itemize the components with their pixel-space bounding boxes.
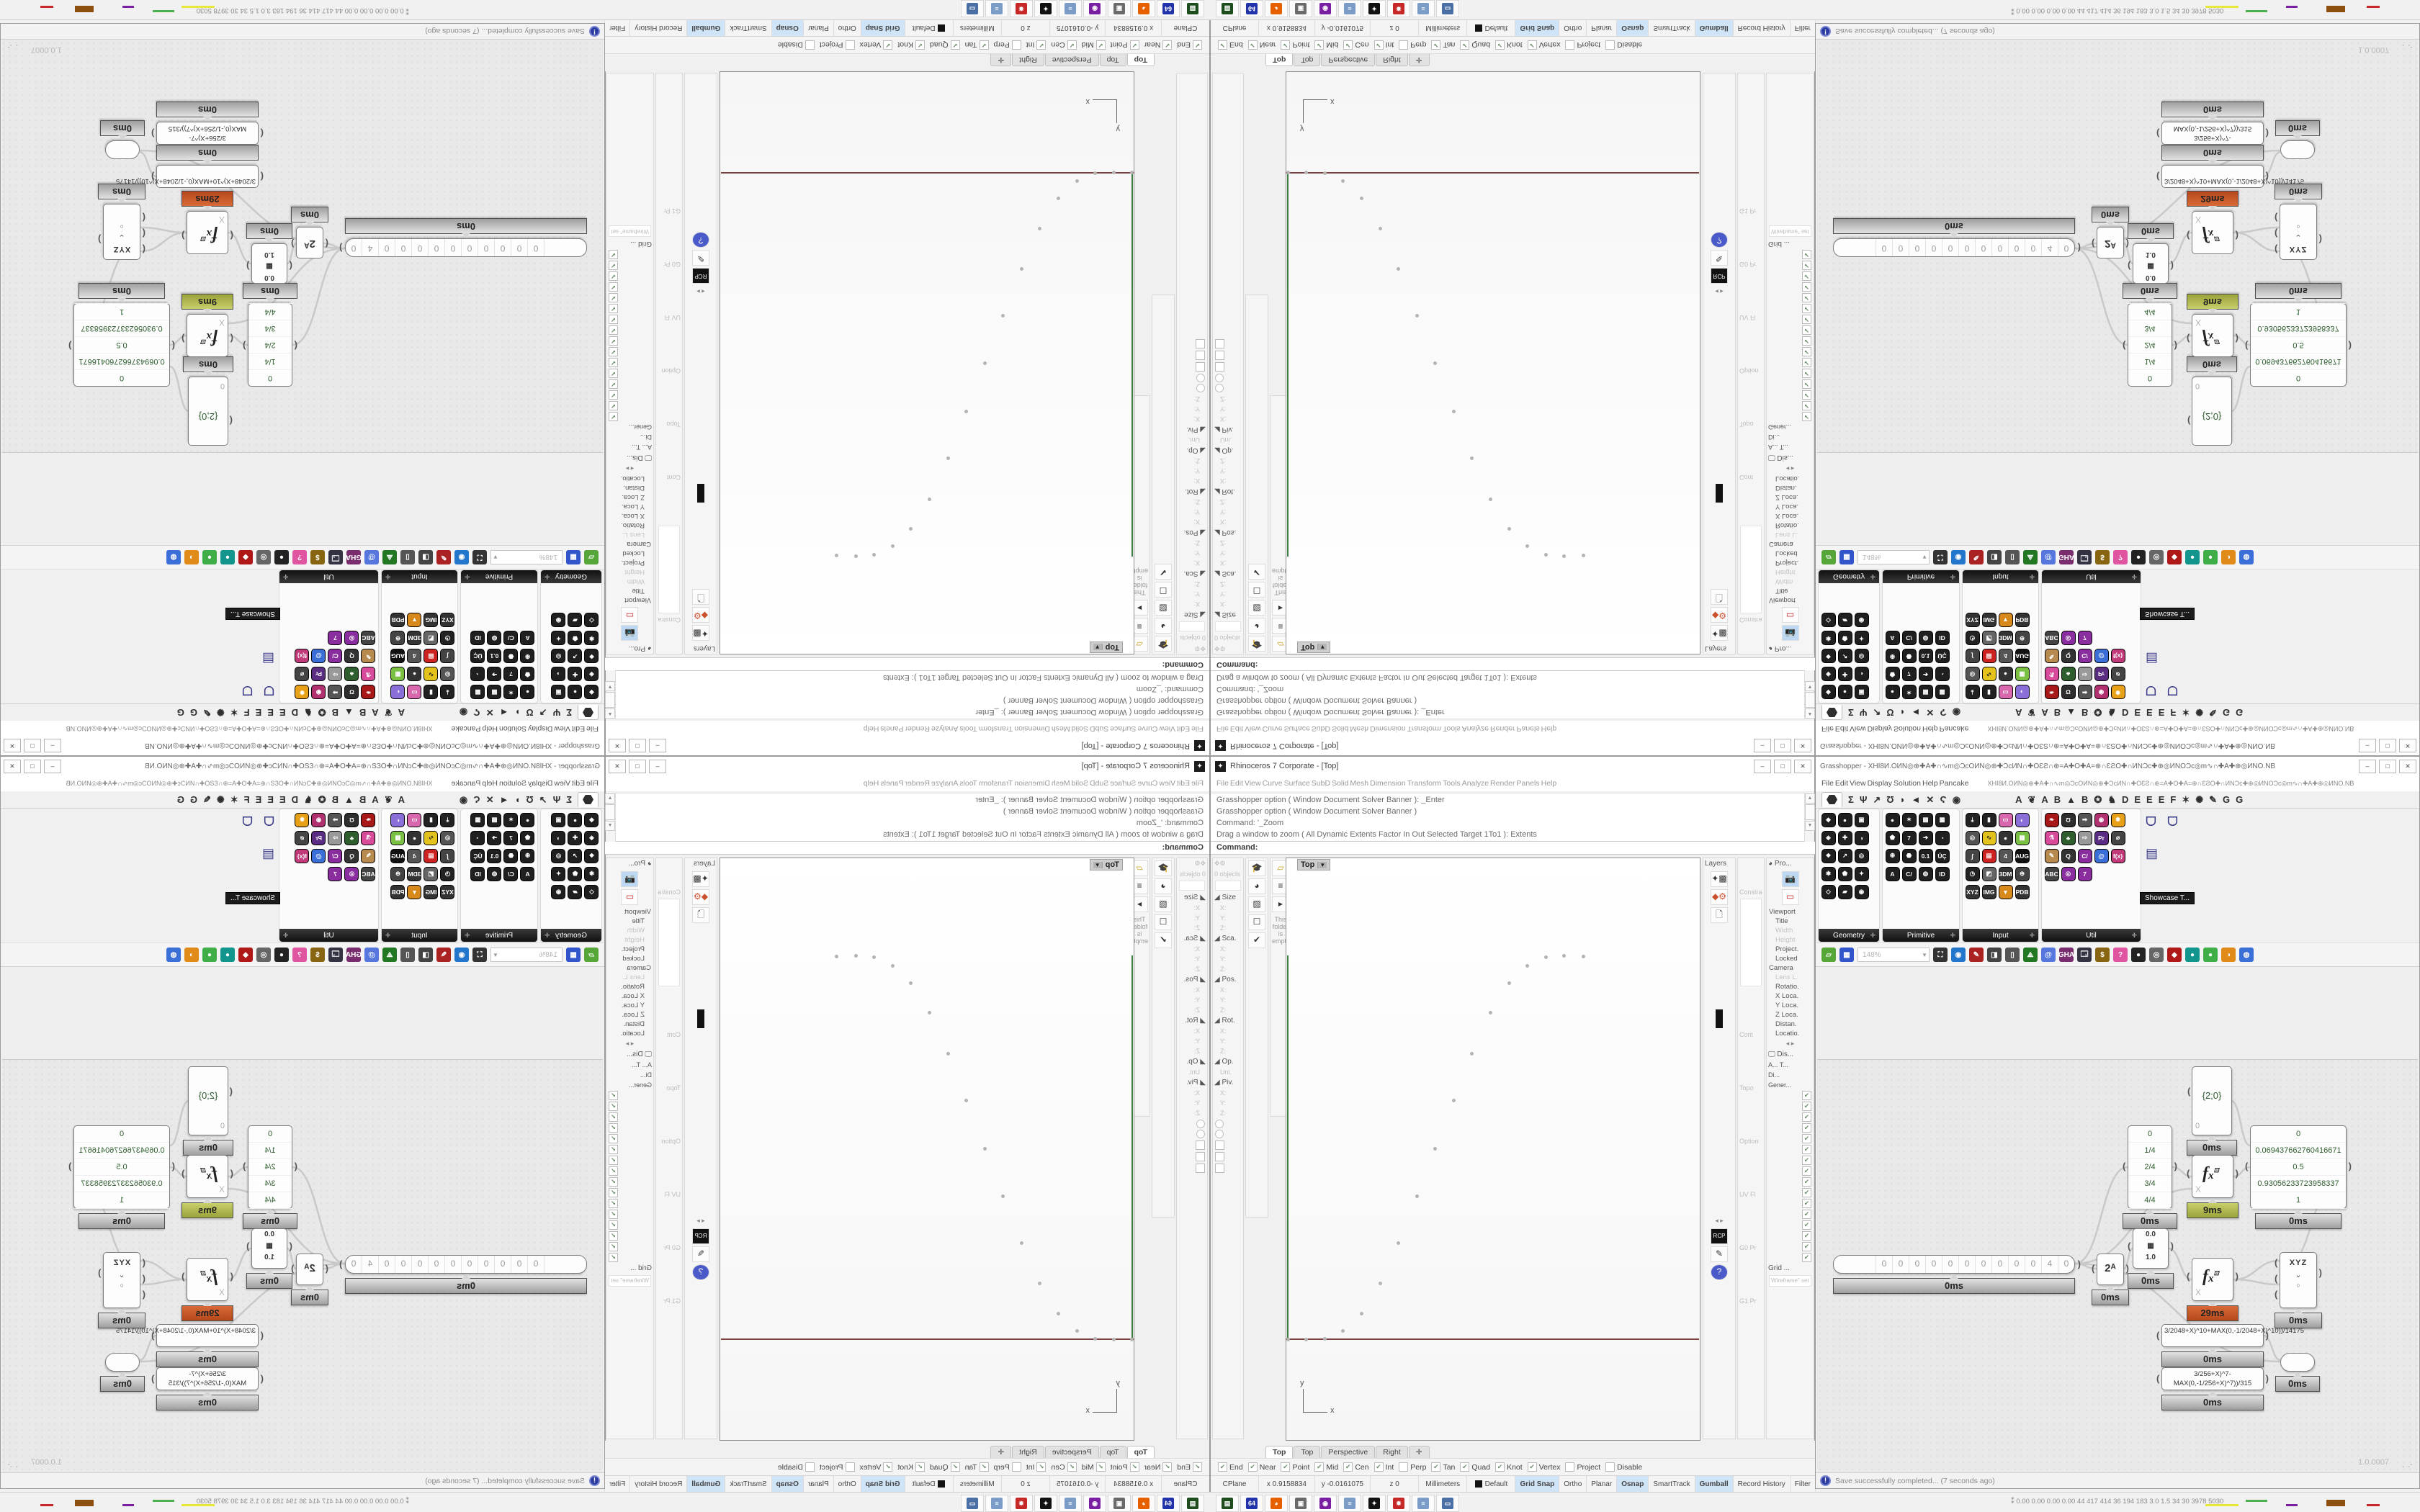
scroller-digit[interactable]: 0 bbox=[1991, 1256, 2008, 1273]
sphere-icon[interactable]: ◕ bbox=[1155, 618, 1172, 634]
gh-node-capsule[interactable] bbox=[2280, 1353, 2315, 1372]
zoom-extents-icon[interactable]: ⛶ bbox=[1933, 948, 1948, 962]
status-cell-0[interactable]: CPlane bbox=[1211, 1476, 1259, 1492]
osnap-checkbox[interactable]: ✔ bbox=[1343, 40, 1353, 50]
viewport-tab-right[interactable]: Right bbox=[1376, 1446, 1408, 1458]
palette-icon[interactable]: ◩ bbox=[423, 865, 439, 882]
display-check-row[interactable]: ✔ bbox=[1767, 411, 1814, 422]
property-row-title[interactable]: Title bbox=[606, 586, 653, 595]
palette-icon[interactable]: ◩ bbox=[1981, 865, 1996, 882]
gh-tab-icon-5[interactable]: ◄ bbox=[500, 707, 509, 718]
gh-plugin-tab-14[interactable]: ✺ bbox=[2195, 707, 2203, 719]
palette-group-label[interactable]: Geometry✛ bbox=[541, 570, 601, 583]
palette-icon[interactable]: ↗ bbox=[568, 648, 583, 665]
palette-icon[interactable]: ⤓ bbox=[1965, 684, 1980, 701]
menu-item-view[interactable]: View bbox=[1159, 724, 1175, 733]
gh-plugin-tab-12[interactable]: F bbox=[2170, 794, 2176, 805]
camera-icon[interactable]: ▯ bbox=[400, 948, 415, 962]
menu-item-dimension[interactable]: Dimension bbox=[1014, 779, 1050, 788]
gh-restore-button[interactable]: □ bbox=[2379, 760, 2396, 773]
osnap-perp[interactable]: Perp bbox=[1399, 1462, 1426, 1472]
menu-item-solid[interactable]: Solid bbox=[1332, 724, 1348, 733]
gh-tab-icon-4[interactable]: ◗ bbox=[1900, 794, 1906, 805]
gh-minimize-button[interactable]: – bbox=[2359, 739, 2376, 752]
gh-plugin-tab-0[interactable]: A bbox=[398, 707, 405, 718]
chart-icon[interactable]: ▨ bbox=[1155, 600, 1172, 616]
taskbar-notes2-icon[interactable]: ≡ bbox=[985, 0, 1008, 17]
scroller-digit[interactable]: 0 bbox=[462, 239, 478, 256]
finder-icon[interactable]: $ bbox=[2095, 948, 2110, 962]
palette-icon[interactable]: ✚ bbox=[568, 666, 583, 683]
palette-group-expand-icon[interactable]: ✛ bbox=[2029, 573, 2035, 581]
osnap-checkbox[interactable]: ✔ bbox=[1374, 1462, 1384, 1472]
finder-icon[interactable]: $ bbox=[310, 550, 325, 564]
palette-icon[interactable]: @ bbox=[311, 648, 326, 665]
display-checkbox[interactable]: ✔ bbox=[609, 1145, 618, 1154]
osnap-checkbox[interactable] bbox=[1399, 40, 1408, 50]
boxedit-checkbox[interactable] bbox=[1215, 339, 1224, 348]
gh-tab-icon-0[interactable]: Σ bbox=[566, 707, 572, 718]
restore-button[interactable]: □ bbox=[629, 739, 646, 752]
scroller-digit[interactable]: 0 bbox=[379, 239, 395, 256]
gh-plugin-tab-6[interactable]: ✪ bbox=[318, 794, 326, 806]
window-icon[interactable]: 🗔 bbox=[2077, 550, 2092, 564]
property-row-yloca[interactable]: Y Loca. bbox=[606, 502, 653, 511]
gh-menu-item-edit[interactable]: Edit bbox=[1835, 779, 1848, 788]
display-check-row[interactable]: ✔ bbox=[1767, 1155, 1814, 1166]
palette-icon[interactable]: Pr bbox=[311, 666, 326, 683]
palette-icon[interactable]: ◔ bbox=[1935, 829, 1950, 846]
display-check-row[interactable]: ✔ bbox=[1767, 325, 1814, 336]
status-toggle-filter[interactable]: Filter bbox=[604, 1476, 629, 1492]
viewport-title-caret-icon[interactable]: ▼ bbox=[1093, 862, 1103, 868]
status-toggle-grid-snap[interactable]: Grid Snap bbox=[1515, 1476, 1559, 1492]
gh-tab-icon-1[interactable]: Ψ bbox=[1860, 707, 1868, 718]
palette-group-label[interactable]: Util✛ bbox=[2042, 570, 2141, 583]
osnap-checkbox[interactable]: ✔ bbox=[1460, 40, 1469, 50]
gh-tab-icon-0[interactable]: Σ bbox=[1848, 794, 1854, 805]
palette-group-expand-icon[interactable]: ✛ bbox=[2029, 932, 2035, 940]
palette-group-expand-icon[interactable]: ✛ bbox=[385, 932, 391, 940]
osnap-quad[interactable]: ✔Quad bbox=[1460, 1462, 1490, 1472]
palette-icon[interactable]: ▭ bbox=[1998, 811, 2013, 828]
scroll-down-icon[interactable]: ▼ bbox=[1805, 821, 1815, 831]
top-viewport[interactable] bbox=[720, 71, 1134, 654]
palette-icon[interactable]: ● bbox=[520, 684, 535, 701]
gh-node-panel20[interactable]: {2;0}(0 bbox=[188, 377, 228, 446]
command-history[interactable]: Grasshopper option ( Window Document Sol… bbox=[616, 793, 1209, 842]
gh-tab-icon-0[interactable]: Σ bbox=[566, 794, 572, 805]
palette-group-expand-icon[interactable]: ✛ bbox=[1870, 573, 1875, 581]
gh-node-domain[interactable]: 0.0▦1.0() bbox=[2133, 243, 2169, 284]
gha-icon[interactable]: GHA bbox=[346, 948, 361, 962]
display-check-row[interactable]: ✔ bbox=[1767, 1101, 1814, 1112]
gh-plugin-tab-12[interactable]: F bbox=[244, 794, 250, 805]
palette-icon[interactable]: ⬟ bbox=[520, 829, 535, 846]
display-checkbox[interactable]: ✔ bbox=[1802, 1177, 1811, 1187]
property-row-width[interactable]: Width bbox=[1767, 926, 1814, 935]
gh-plugin-tab-17[interactable]: G bbox=[2236, 794, 2243, 805]
scroller-digit[interactable]: 0 bbox=[478, 1256, 495, 1273]
viewport-tab-✛[interactable]: ✛ bbox=[990, 54, 1011, 66]
gh-node-fx-2[interactable]: fx⊡X() bbox=[187, 1258, 228, 1301]
gh-tab-icon-3[interactable]: Ʊ bbox=[1886, 707, 1894, 718]
scroller-digit[interactable]: 4 bbox=[362, 239, 379, 256]
scroll-thumb[interactable] bbox=[1805, 804, 1815, 820]
property-row-lensl[interactable]: Lens L. bbox=[1767, 530, 1814, 539]
palette-icon[interactable]: A bbox=[520, 865, 535, 882]
palette-icon[interactable]: ♣ bbox=[2061, 829, 2076, 846]
command-prompt[interactable]: Command: bbox=[604, 842, 1209, 855]
scroller-digit[interactable]: 4 bbox=[362, 1256, 379, 1273]
taskbar-rhino-icon[interactable]: ✦ bbox=[1363, 0, 1386, 17]
display-checkbox[interactable]: ✔ bbox=[609, 412, 618, 421]
gh-tab-icon-3[interactable]: Ʊ bbox=[526, 707, 533, 718]
palette-icon[interactable]: ◈ bbox=[1821, 666, 1836, 683]
palette-icon[interactable]: ▦ bbox=[390, 829, 405, 846]
display-checkbox[interactable]: ✔ bbox=[1802, 250, 1811, 259]
palette-icon[interactable]: ÜÇ bbox=[1935, 648, 1950, 665]
taskbar-gear-red-icon[interactable]: ✸ bbox=[1387, 0, 1410, 17]
display-mode-box[interactable]: Wireframe" set bbox=[1769, 225, 1811, 237]
menu-item-solid[interactable]: Solid bbox=[1072, 779, 1088, 788]
display-checkbox[interactable]: ✔ bbox=[609, 390, 618, 400]
display-check-row[interactable]: ✔ bbox=[606, 1133, 653, 1144]
gh-node-list-frac[interactable]: 01/42/43/44/4() bbox=[2128, 1125, 2172, 1209]
ball-blue-icon[interactable]: ◍ bbox=[2239, 550, 2254, 564]
property-row-yloca[interactable]: Y Loca. bbox=[1767, 502, 1814, 511]
menu-item-solid[interactable]: Solid bbox=[1072, 724, 1088, 733]
palette-icon[interactable]: ◉ bbox=[2094, 811, 2109, 828]
property-row-camera[interactable]: Camera bbox=[606, 539, 653, 549]
ball-orange-icon[interactable]: ◑ bbox=[2221, 948, 2236, 962]
palette-icon[interactable]: ⤓ bbox=[440, 811, 455, 828]
osnap-checkbox[interactable] bbox=[1565, 1462, 1574, 1472]
scroller-digit[interactable]: 0 bbox=[1958, 239, 1975, 256]
palette-icon[interactable]: ✱ bbox=[584, 865, 599, 882]
palette-icon[interactable]: ➔ bbox=[1918, 829, 1933, 846]
package-icon[interactable]: ? bbox=[292, 550, 307, 564]
gh-plugin-tab-15[interactable]: ✎ bbox=[2209, 707, 2217, 719]
radio-on[interactable] bbox=[1215, 1120, 1224, 1128]
status-cell-5[interactable]: Default bbox=[1467, 20, 1515, 36]
taskbar-gear-red-icon[interactable]: ✸ bbox=[1010, 0, 1033, 17]
property-row-locked[interactable]: Locked bbox=[606, 954, 653, 963]
palette-icon[interactable]: ◇ bbox=[584, 883, 599, 900]
status-toggle-osnap[interactable]: Osnap bbox=[771, 20, 803, 36]
palette-icon[interactable]: Pr bbox=[2094, 829, 2109, 846]
status-toggle-smarttrack[interactable]: SmartTrack bbox=[1649, 20, 1695, 36]
display-check-row[interactable]: ✔ bbox=[1767, 1198, 1814, 1209]
palette-icon[interactable]: ● bbox=[1998, 829, 2013, 846]
gh-node-capsule[interactable] bbox=[105, 140, 140, 159]
gh-menu-item-pancake[interactable]: Pancake bbox=[1940, 724, 1969, 733]
palette-icon[interactable]: ▮ bbox=[1981, 811, 1996, 828]
palette-icon[interactable]: ⊕ bbox=[390, 865, 405, 882]
layer-new-icon[interactable]: 🗋 bbox=[1711, 907, 1728, 923]
status-toggle-smarttrack[interactable]: SmartTrack bbox=[725, 1476, 771, 1492]
minimize-button[interactable]: – bbox=[649, 739, 666, 752]
status-toggle-osnap[interactable]: Osnap bbox=[1617, 20, 1649, 36]
gh-close-button[interactable]: ✕ bbox=[4, 760, 21, 773]
osnap-checkbox[interactable]: ✔ bbox=[1281, 40, 1290, 50]
display-checkbox[interactable]: ✔ bbox=[1802, 401, 1811, 410]
osnap-disable[interactable]: Disable bbox=[778, 40, 815, 50]
gh-plugin-tab-8[interactable]: D bbox=[292, 707, 298, 718]
gh-plugin-tab-6[interactable]: ✪ bbox=[318, 707, 326, 719]
palette-extra-icon-2[interactable]: ▤ bbox=[262, 846, 274, 861]
display-checkbox[interactable]: ✔ bbox=[1802, 1242, 1811, 1251]
menu-item-solid[interactable]: Solid bbox=[1332, 779, 1348, 788]
scroller-digit[interactable]: 0 bbox=[1958, 1256, 1975, 1273]
menu-item-subd[interactable]: SubD bbox=[1090, 779, 1108, 788]
gh-tab-icon-2[interactable]: ↗ bbox=[539, 794, 547, 806]
box-icon[interactable]: ◨ bbox=[418, 948, 433, 962]
display-checkbox[interactable]: ✔ bbox=[1802, 1199, 1811, 1208]
display-check-row[interactable]: ✔ bbox=[1767, 1176, 1814, 1187]
palette-icon[interactable]: ◎ bbox=[1965, 666, 1980, 683]
status-toggle-osnap[interactable]: Osnap bbox=[1617, 1476, 1649, 1492]
status-cell-1[interactable]: x 0.9158834 bbox=[1259, 1476, 1315, 1492]
property-row-locatio[interactable]: Locatio. bbox=[1767, 1029, 1814, 1038]
status-cell-0[interactable]: CPlane bbox=[1211, 20, 1259, 36]
properties-hscroll[interactable]: ◂ ▸ bbox=[1767, 463, 1814, 474]
display-mode-box[interactable]: Wireframe" set bbox=[609, 225, 651, 237]
palette-icon[interactable]: ✶ bbox=[503, 684, 519, 701]
close-button[interactable]: ✕ bbox=[1794, 760, 1811, 773]
gh-tab-icon-6[interactable]: ✕ bbox=[486, 707, 494, 719]
gha-icon[interactable]: GHA bbox=[2059, 550, 2074, 564]
palette-group-label[interactable]: Primitive✛ bbox=[1883, 570, 1959, 583]
osnap-int[interactable]: ✔Int bbox=[1374, 1462, 1394, 1472]
taskbar-firefox-icon[interactable]: ◕ bbox=[1132, 1495, 1155, 1512]
scroller-digit[interactable]: 4 bbox=[2041, 1256, 2058, 1273]
gh-close-button[interactable]: ✕ bbox=[2399, 739, 2416, 752]
gh-node-expr-1[interactable]: 3/2048+X)^10+MAX(0,-1/2048+X)^10))/14175… bbox=[2161, 1324, 2264, 1347]
display-checkbox[interactable]: ✔ bbox=[609, 250, 618, 259]
pen-icon[interactable]: ✎ bbox=[1711, 1246, 1728, 1262]
gh-tab-icon-5[interactable]: ◄ bbox=[1912, 707, 1921, 718]
palette-icon[interactable]: ◍ bbox=[487, 865, 502, 882]
menu-item-render[interactable]: Render bbox=[905, 779, 930, 788]
property-row-viewport[interactable]: Viewport bbox=[1767, 907, 1814, 917]
display-check-row[interactable]: ✔ bbox=[606, 260, 653, 271]
palette-icon[interactable]: AUG bbox=[390, 847, 405, 864]
gh-plugin-tab-14[interactable]: ✺ bbox=[2195, 794, 2203, 806]
display-check-row[interactable]: ✔ bbox=[1767, 1112, 1814, 1122]
taskbar-rhino-icon[interactable]: ✦ bbox=[1034, 1495, 1057, 1512]
display-check-row[interactable]: ✔ bbox=[606, 390, 653, 400]
rings-icon[interactable]: ◎ bbox=[2149, 550, 2164, 564]
palette-icon[interactable]: ∫ bbox=[440, 847, 455, 864]
osnap-checkbox[interactable]: ✔ bbox=[1248, 1462, 1258, 1472]
gh-plugin-tab-15[interactable]: ✎ bbox=[2209, 794, 2217, 806]
gh-plugin-tab-4[interactable]: ▲ bbox=[2066, 707, 2076, 718]
display-check-row[interactable]: ✔ bbox=[1767, 314, 1814, 325]
gh-tab-icon-2[interactable]: ↗ bbox=[539, 707, 547, 719]
gh-node-fx-2[interactable]: fx⊡X() bbox=[2192, 1258, 2233, 1301]
palette-icon[interactable]: 7 bbox=[1901, 666, 1917, 683]
display-check-row[interactable]: ✔ bbox=[606, 357, 653, 368]
menu-item-view[interactable]: View bbox=[1245, 724, 1261, 733]
sketch-icon[interactable]: ✎ bbox=[436, 948, 451, 962]
menu-item-subd[interactable]: SubD bbox=[1312, 724, 1330, 733]
menu-item-help[interactable]: Help bbox=[864, 779, 879, 788]
palette-group-expand-icon[interactable]: ✛ bbox=[465, 932, 470, 940]
boxedit-checkbox[interactable] bbox=[1215, 1164, 1224, 1173]
ball-teal-icon[interactable]: ● bbox=[220, 948, 235, 962]
gh-resize-grip[interactable]: ⡀⡠ bbox=[6, 1460, 19, 1468]
gh-plugin-tab-7[interactable]: ♞ bbox=[304, 707, 313, 719]
palette-icon[interactable]: ✚ bbox=[1837, 666, 1852, 683]
palette-icon[interactable]: ✦ bbox=[1854, 630, 1869, 647]
palette-icon[interactable]: ▦ bbox=[1918, 684, 1933, 701]
property-row-width[interactable]: Width bbox=[606, 577, 653, 586]
taskbar-floppy64-icon[interactable]: 64 bbox=[1240, 0, 1263, 17]
palette-icon[interactable]: ◉ bbox=[311, 684, 326, 701]
palette-icon[interactable]: ⊕ bbox=[2015, 630, 2030, 647]
rings-icon[interactable]: ◎ bbox=[256, 948, 271, 962]
osnap-mid[interactable]: ✔Mid bbox=[1314, 40, 1338, 50]
display-checkbox[interactable]: ✔ bbox=[609, 315, 618, 324]
palette-icon[interactable]: ⇨ bbox=[328, 666, 343, 683]
osnap-knot[interactable]: ✔Knot bbox=[897, 1462, 925, 1472]
viewport-title-caret-icon[interactable]: ▼ bbox=[1093, 644, 1103, 651]
gh-menu-item-file[interactable]: File bbox=[586, 724, 599, 733]
palette-extra-icon-0[interactable]: ᗜ bbox=[2146, 814, 2156, 829]
cluster-icon[interactable]: @ bbox=[2041, 550, 2056, 564]
property-row-distan[interactable]: Distan. bbox=[606, 1020, 653, 1029]
palette-group-expand-icon[interactable]: ✛ bbox=[1870, 932, 1875, 940]
gh-menu-item-edit[interactable]: Edit bbox=[572, 724, 585, 733]
palette-icon[interactable]: ⇨ bbox=[2077, 829, 2092, 846]
gh-plugin-tab-5[interactable]: B bbox=[2081, 794, 2088, 805]
osnap-cen[interactable]: ✔Cen bbox=[1051, 40, 1076, 50]
gh-tab-icon-4[interactable]: ◗ bbox=[514, 794, 520, 805]
osnap-tan[interactable]: ✔Tan bbox=[1431, 40, 1455, 50]
menu-item-analyze[interactable]: Analyze bbox=[1462, 779, 1489, 788]
osnap-checkbox[interactable]: ✔ bbox=[1130, 40, 1139, 50]
gh-node-panel-values[interactable]: 00.0694376627604166710.50.93056233723958… bbox=[73, 1125, 170, 1209]
display-checkbox[interactable]: ✔ bbox=[1802, 1231, 1811, 1241]
scroller-digit[interactable]: 0 bbox=[445, 1256, 462, 1273]
gh-plugin-tab-4[interactable]: ▲ bbox=[344, 707, 354, 718]
display-check-row[interactable]: ✔ bbox=[606, 1144, 653, 1155]
menu-item-view[interactable]: View bbox=[1245, 779, 1261, 788]
taskbar-drive-icon[interactable]: ▤ bbox=[1181, 0, 1204, 17]
palette-group-expand-icon[interactable]: ✛ bbox=[283, 932, 289, 940]
palette-icon[interactable]: A bbox=[1885, 630, 1900, 647]
gh-plugin-tab-6[interactable]: ✪ bbox=[2094, 794, 2102, 806]
gh-tab-icon-1[interactable]: Ψ bbox=[553, 707, 561, 718]
palette-icon[interactable]: f(x) bbox=[2110, 847, 2125, 864]
palette-icon[interactable]: ✱ bbox=[1821, 865, 1836, 882]
help-icon[interactable]: ? bbox=[692, 1264, 709, 1280]
taskbar-gear-red-icon[interactable]: ✸ bbox=[1387, 1495, 1410, 1512]
menu-item-tools[interactable]: Tools bbox=[959, 779, 977, 788]
gh-node-pow-2a[interactable]: 2ᴬ() bbox=[2097, 227, 2124, 258]
palette-icon[interactable]: ● bbox=[1885, 684, 1900, 701]
osnap-near[interactable]: ✔Near bbox=[1144, 40, 1173, 50]
scroller-digit[interactable]: 0 bbox=[395, 239, 412, 256]
sphere-icon[interactable]: ● bbox=[274, 550, 289, 564]
gh-tab-icon-6[interactable]: ✕ bbox=[1926, 707, 1934, 719]
gh-node-expr-1[interactable]: 3/2048+X)^10+MAX(0,-1/2048+X)^10))/14175… bbox=[156, 165, 259, 188]
display-checkbox[interactable]: ✔ bbox=[1802, 1253, 1811, 1262]
gh-restore-button[interactable]: □ bbox=[24, 760, 41, 773]
gh-plugin-tab-0[interactable]: A bbox=[398, 794, 405, 805]
osnap-project[interactable]: Project bbox=[1565, 1462, 1600, 1472]
property-row-distan[interactable]: Distan. bbox=[606, 483, 653, 492]
palette-icon[interactable]: ❆ bbox=[1885, 847, 1900, 864]
gh-plugin-tab-13[interactable]: ✶ bbox=[2182, 707, 2190, 719]
axes-icon[interactable]: ⟁ bbox=[2023, 550, 2038, 564]
viewport-tab-right[interactable]: Right bbox=[1376, 54, 1408, 66]
palette-icon[interactable]: ◷ bbox=[1965, 630, 1980, 647]
palette-icon[interactable]: ▤ bbox=[423, 847, 439, 864]
property-row-width[interactable]: Width bbox=[606, 926, 653, 935]
gh-node-domain[interactable]: 0.0▦1.0() bbox=[251, 243, 287, 284]
palette-icon[interactable]: ▩ bbox=[1935, 684, 1950, 701]
property-row-locatio[interactable]: Locatio. bbox=[606, 474, 653, 483]
palette-icon[interactable]: Ʊ bbox=[344, 684, 359, 701]
palette-icon[interactable]: ↗ bbox=[568, 847, 583, 864]
palette-icon[interactable]: Q bbox=[344, 648, 359, 665]
palette-group-label[interactable]: Input✛ bbox=[1963, 929, 2038, 942]
osnap-checkbox[interactable]: ✔ bbox=[1495, 40, 1505, 50]
menu-item-panels[interactable]: Panels bbox=[880, 779, 903, 788]
cluster-icon[interactable]: @ bbox=[364, 550, 379, 564]
gh-plugin-tab-8[interactable]: D bbox=[292, 794, 298, 805]
viewport-tab-✛[interactable]: ✛ bbox=[1409, 1446, 1430, 1458]
scroller-digit[interactable]: 0 bbox=[1875, 239, 1892, 256]
palette-icon[interactable]: ↗ bbox=[1837, 648, 1852, 665]
osnap-checkbox[interactable]: ✔ bbox=[980, 40, 989, 50]
axes-icon[interactable]: ⟁ bbox=[382, 948, 397, 962]
osnap-vertex[interactable]: ✔Vertex bbox=[860, 40, 893, 50]
palette-icon[interactable]: AUG bbox=[390, 648, 405, 665]
gh-menu-item-file[interactable]: File bbox=[1821, 779, 1834, 788]
palette-group-label[interactable]: Primitive✛ bbox=[461, 570, 537, 583]
palette-icon[interactable]: PDB bbox=[390, 612, 405, 629]
viewport-title-tab[interactable]: Top▼ bbox=[1297, 859, 1330, 870]
property-row-height[interactable]: Height bbox=[606, 935, 653, 945]
zoom-extents-icon[interactable]: ⛶ bbox=[472, 550, 487, 564]
gh-node-domain[interactable]: 0.0▦1.0() bbox=[251, 1228, 287, 1269]
osnap-checkbox[interactable] bbox=[805, 40, 815, 50]
gh-close-button[interactable]: ✕ bbox=[2399, 760, 2416, 773]
palette-icon[interactable]: ❆ bbox=[1885, 648, 1900, 665]
gh-node-expr-1[interactable]: 3/2048+X)^10+MAX(0,-1/2048+X)^10))/14175… bbox=[2161, 165, 2264, 188]
status-toggle-gumball[interactable]: Gumball bbox=[686, 20, 725, 36]
status-toggle-gumball[interactable]: Gumball bbox=[686, 1476, 725, 1492]
property-row-camera[interactable]: Camera bbox=[1767, 539, 1814, 549]
viewport-tab-top[interactable]: Top bbox=[1100, 1446, 1126, 1458]
display-check-row[interactable]: ✔ bbox=[606, 368, 653, 379]
gh-menu-item-solution[interactable]: Solution bbox=[499, 779, 526, 788]
command-scrollbar[interactable]: ▲▼ bbox=[1804, 793, 1814, 842]
boxedit-checkbox[interactable] bbox=[1215, 362, 1224, 372]
palette-icon[interactable]: 4 bbox=[407, 847, 422, 864]
property-row-viewport[interactable]: Viewport bbox=[1767, 595, 1814, 605]
osnap-checkbox[interactable]: ✔ bbox=[1460, 1462, 1469, 1472]
command-prompt[interactable]: Command: bbox=[1211, 842, 1816, 855]
palette-group-expand-icon[interactable]: ✛ bbox=[465, 573, 470, 581]
menu-item-curve[interactable]: Curve bbox=[1263, 724, 1283, 733]
palette-icon[interactable]: ↗ bbox=[1837, 847, 1852, 864]
properties-hscroll[interactable]: ◂ ▸ bbox=[1767, 1038, 1814, 1049]
display-checkbox[interactable]: ✔ bbox=[609, 1112, 618, 1122]
